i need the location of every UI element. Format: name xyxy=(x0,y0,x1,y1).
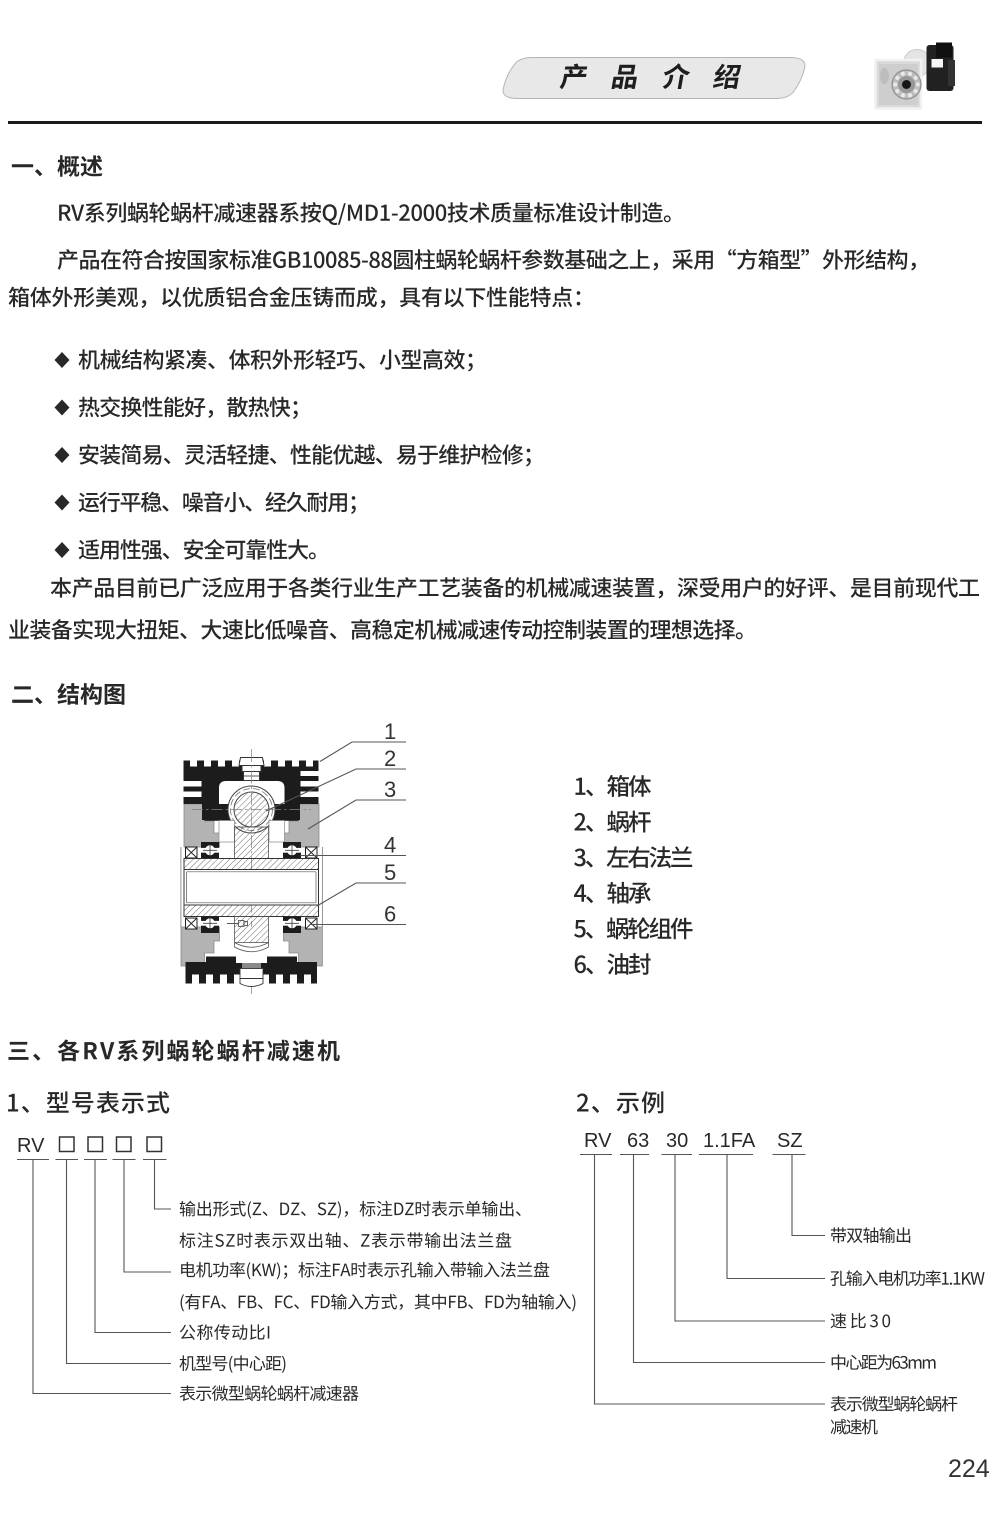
svg-text:1.1FA: 1.1FA xyxy=(703,1130,756,1152)
svg-text:1: 1 xyxy=(384,719,396,744)
svg-text:30: 30 xyxy=(666,1130,688,1152)
svg-text:2: 2 xyxy=(384,746,396,771)
svg-text:63: 63 xyxy=(627,1130,649,1152)
svg-text:224: 224 xyxy=(948,1455,990,1483)
svg-text:4: 4 xyxy=(384,833,396,858)
svg-text:SZ: SZ xyxy=(777,1130,803,1152)
svg-text:RV: RV xyxy=(17,1135,45,1157)
svg-text:5: 5 xyxy=(384,860,396,885)
svg-text:3: 3 xyxy=(384,777,396,802)
svg-text:RV: RV xyxy=(584,1130,612,1152)
svg-text:6: 6 xyxy=(384,902,396,927)
